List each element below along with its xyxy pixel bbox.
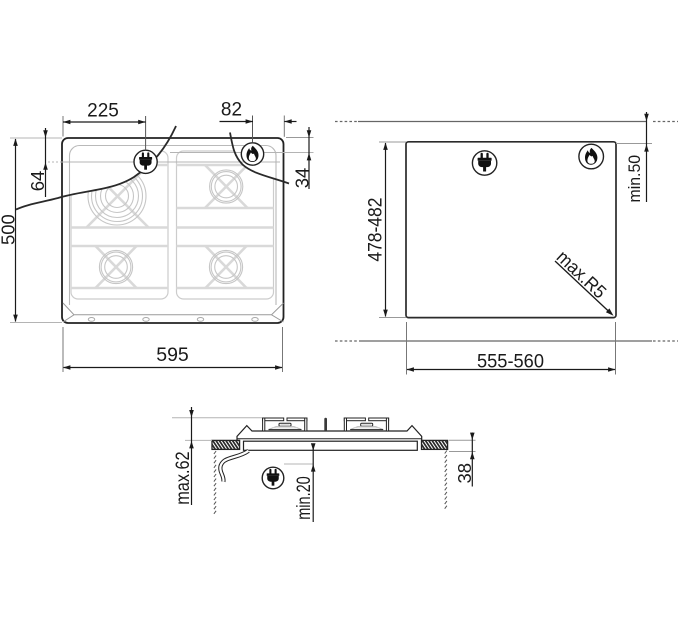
svg-text:500: 500 [0,214,19,245]
svg-text:max.62: max.62 [172,451,194,504]
svg-text:64: 64 [27,171,48,192]
svg-text:595: 595 [156,344,189,366]
svg-text:min.50: min.50 [626,155,644,203]
svg-text:225: 225 [87,101,119,122]
svg-text:555-560: 555-560 [477,351,544,373]
svg-text:82: 82 [221,100,242,121]
svg-text:min.20: min.20 [294,476,315,520]
svg-text:38: 38 [454,463,475,484]
svg-text:478-482: 478-482 [365,198,386,262]
svg-text:34: 34 [292,168,313,189]
